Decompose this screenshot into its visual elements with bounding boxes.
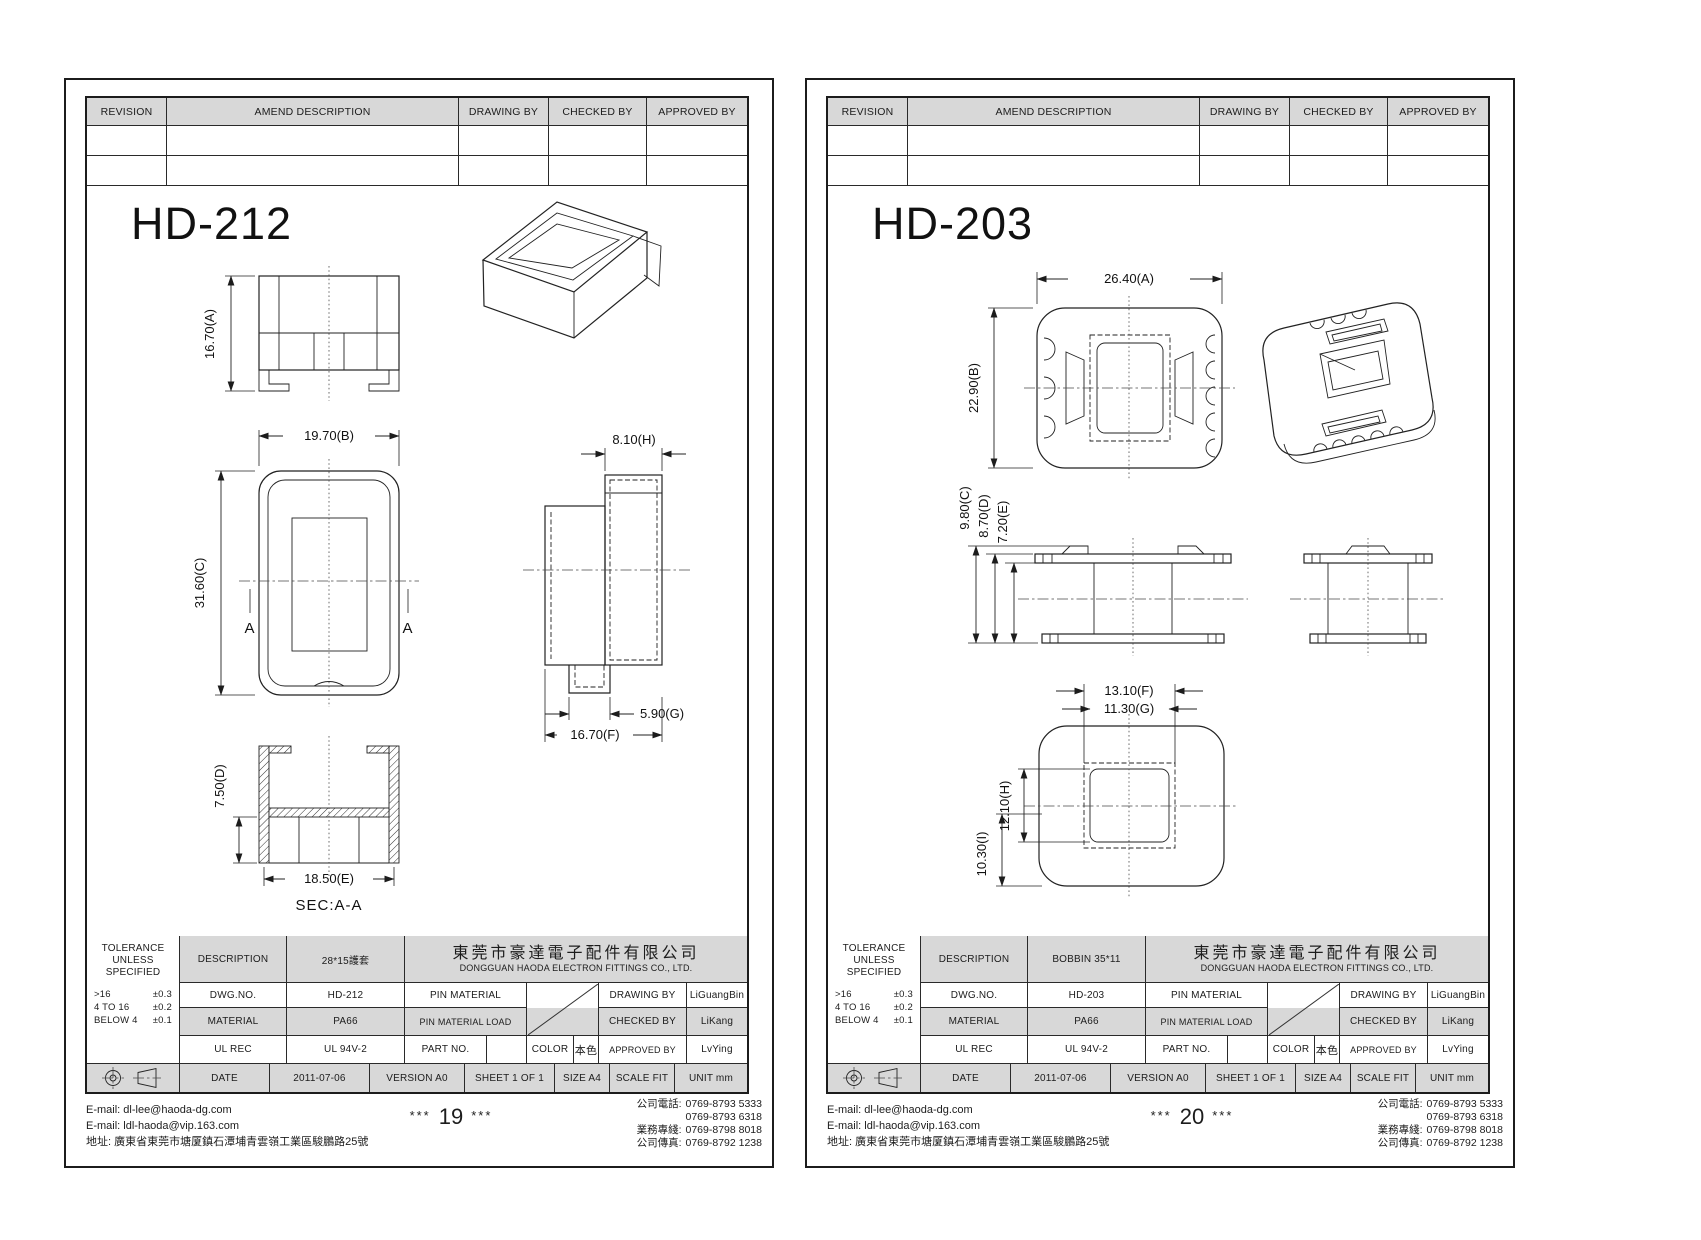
revision-empty-cell — [1290, 126, 1388, 156]
version-cell: VERSION A0 — [1111, 1064, 1206, 1092]
revision-empty-cell — [1200, 126, 1290, 156]
fax-number: 0769-8792 1238 — [1427, 1137, 1504, 1150]
tol-range-2: 4 TO 16 — [835, 1001, 870, 1014]
dim-label-d: 7.50(D) — [212, 764, 227, 807]
unit-cell: UNIT mm — [1416, 1064, 1488, 1092]
top-view: 16.70(A) — [202, 266, 399, 401]
page-number: ***20*** — [1107, 1104, 1277, 1130]
color-label-cell: COLOR — [527, 1036, 574, 1064]
dim-label-a: 16.70(A) — [202, 309, 217, 359]
bottom-view: 13.10(F) 11.30(G) 12.10(H) 10.30(I) — [974, 683, 1238, 898]
projection-symbols — [102, 1067, 164, 1089]
dim-label-g: 11.30(G) — [1104, 701, 1154, 716]
top-view: 26.40(A) 22.90(B) — [966, 271, 1235, 480]
revision-empty-cell — [828, 156, 908, 186]
revision-table: REVISION AMEND DESCRIPTION DRAWING BY CH… — [87, 98, 747, 186]
ulrec-label-cell: UL REC — [921, 1036, 1028, 1064]
projection-symbols-cell — [87, 1064, 180, 1092]
scale-cell: SCALE FIT — [1351, 1064, 1416, 1092]
revision-empty-cell — [87, 126, 167, 156]
phone-2: 0769-8793 6318 — [1427, 1111, 1504, 1124]
dim-label-b: 22.90(B) — [966, 363, 981, 413]
company-name-en: DONGGUAN HAODA ELECTRON FITTINGS CO., LT… — [460, 963, 693, 974]
company-name-en: DONGGUAN HAODA ELECTRON FITTINGS CO., LT… — [1201, 963, 1434, 974]
checkedby-label-cell: CHECKED BY — [1340, 1008, 1428, 1036]
phone-2: 0769-8793 6318 — [686, 1111, 763, 1124]
dim-label-c: 31.60(C) — [192, 558, 207, 609]
dim-label-f: 13.10(F) — [1104, 683, 1153, 698]
approvedby-header-cell: APPROVED BY — [1388, 98, 1488, 126]
company-name-cn: 東莞市豪達電子配件有限公司 — [1193, 945, 1440, 963]
technical-drawing-hd203: 26.40(A) 22.90(B) — [828, 186, 1488, 936]
section-view: 7.50(D) 18.50(E) SEC:A-A — [212, 736, 399, 914]
footer-phones: 公司電話:0769-8793 5333 0769-8793 6318 業務專綫:… — [620, 1098, 763, 1150]
dwgno-value-cell: HD-212 — [287, 983, 405, 1008]
revision-header-cell: REVISION — [828, 98, 908, 126]
page-number-stars-left: *** — [1151, 1108, 1172, 1123]
revision-empty-cell — [1200, 156, 1290, 186]
partno-label-cell: PART NO. — [405, 1036, 487, 1064]
sheet-frame: REVISION AMEND DESCRIPTION DRAWING BY CH… — [826, 96, 1490, 1094]
footer-email-2: E-mail: ldl-haoda@vip.163.com — [86, 1118, 368, 1134]
section-mark-a-right: A — [402, 620, 413, 637]
approvedby-label-cell: APPROVED BY — [1340, 1036, 1428, 1064]
footer-address: 地址: 廣東省東莞市塘厦鎮石潭埔青雲嶺工業區駿鵬路25號 — [827, 1134, 1109, 1150]
sheet-frame: REVISION AMEND DESCRIPTION DRAWING BY CH… — [85, 96, 749, 1094]
dim-label-b: 19.70(B) — [304, 428, 354, 443]
material-label-cell: MATERIAL — [921, 1008, 1028, 1036]
partno-label-cell: PART NO. — [1146, 1036, 1228, 1064]
side-elevation — [1290, 538, 1446, 656]
page-number-value: 19 — [439, 1104, 463, 1129]
title-block: TOLERANCE UNLESS SPECIFIED >16±0.3 4 TO … — [828, 936, 1488, 1092]
projection-symbols — [843, 1067, 905, 1089]
tolerance-rows: >16±0.3 4 TO 16±0.2 BELOW 4±0.1 — [828, 988, 920, 1027]
partno-value-cell — [1228, 1036, 1268, 1064]
dim-label-c: 9.80(C) — [957, 486, 972, 529]
tolerance-line3: SPECIFIED — [847, 967, 902, 979]
checkedby-header-cell: CHECKED BY — [1290, 98, 1388, 126]
company-name-cn: 東莞市豪達電子配件有限公司 — [452, 945, 699, 963]
company-cell: 東莞市豪達電子配件有限公司 DONGGUAN HAODA ELECTRON FI… — [405, 936, 747, 983]
section-mark-a-left: A — [244, 620, 255, 637]
drawingby-header-cell: DRAWING BY — [459, 98, 549, 126]
approvedby-name-cell: LvYing — [1428, 1036, 1488, 1064]
dim-label-f: 16.70(F) — [570, 727, 619, 742]
page-number-value: 20 — [1180, 1104, 1204, 1129]
sheet-cell: SHEET 1 OF 1 — [465, 1064, 555, 1092]
ulrec-value-cell: UL 94V-2 — [287, 1036, 405, 1064]
version-cell: VERSION A0 — [370, 1064, 465, 1092]
pin-material-diagonal-cell — [1268, 983, 1340, 1036]
amend-header-cell: AMEND DESCRIPTION — [908, 98, 1200, 126]
description-value-cell: 28*15護套 — [287, 936, 405, 983]
dim-label-e: 18.50(E) — [304, 871, 354, 886]
size-cell: SIZE A4 — [555, 1064, 610, 1092]
footer-contact: E-mail: dl-lee@haoda-dg.com E-mail: ldl-… — [827, 1102, 1109, 1150]
amend-header-cell: AMEND DESCRIPTION — [167, 98, 459, 126]
checkedby-label-cell: CHECKED BY — [599, 1008, 687, 1036]
scale-cell: SCALE FIT — [610, 1064, 675, 1092]
drawingby-label-cell: DRAWING BY — [1340, 983, 1428, 1008]
pin-material-diagonal-cell — [527, 983, 599, 1036]
revision-header-cell: REVISION — [87, 98, 167, 126]
revision-empty-cell — [549, 156, 647, 186]
phone-label: 公司電話: — [1361, 1098, 1423, 1111]
dim-label-h: 8.10(H) — [612, 432, 655, 447]
dim-label-h: 12.10(H) — [997, 781, 1012, 832]
sheet-cell: SHEET 1 OF 1 — [1206, 1064, 1296, 1092]
checkedby-name-cell: LiKang — [687, 1008, 747, 1036]
revision-empty-cell — [459, 156, 549, 186]
revision-empty-cell — [1388, 126, 1488, 156]
front-view: A A 31.60(C) — [192, 459, 419, 707]
footer-contact: E-mail: dl-lee@haoda-dg.com E-mail: ldl-… — [86, 1102, 368, 1150]
tol-val-2: ±0.2 — [894, 1001, 913, 1014]
side-view: 8.10(H) 5.90(G) 16.70(F) — [523, 432, 693, 742]
page-number-stars-right: *** — [1212, 1108, 1233, 1123]
biz-label: 業務專綫: — [1361, 1124, 1423, 1137]
material-value-cell: PA66 — [287, 1008, 405, 1036]
revision-empty-cell — [87, 156, 167, 186]
revision-empty-cell — [459, 126, 549, 156]
drawingby-header-cell: DRAWING BY — [1200, 98, 1290, 126]
revision-table: REVISION AMEND DESCRIPTION DRAWING BY CH… — [828, 98, 1488, 186]
checkedby-name-cell: LiKang — [1428, 1008, 1488, 1036]
description-value-cell: BOBBIN 35*11 — [1028, 936, 1146, 983]
drawingby-label-cell: DRAWING BY — [599, 983, 687, 1008]
tolerance-cell: TOLERANCE UNLESS SPECIFIED >16±0.3 4 TO … — [828, 936, 921, 1064]
dim-label-e: 7.20(E) — [995, 501, 1010, 544]
tol-range-2: 4 TO 16 — [94, 1001, 129, 1014]
revision-empty-cell — [828, 126, 908, 156]
phone-label: 公司電話: — [620, 1098, 682, 1111]
pin-material-load-cell: PIN MATERIAL LOAD — [405, 1008, 527, 1036]
footer-email-2: E-mail: ldl-haoda@vip.163.com — [827, 1118, 1109, 1134]
tol-val-3: ±0.1 — [894, 1014, 913, 1027]
description-label-cell: DESCRIPTION — [921, 936, 1028, 983]
tol-val-3: ±0.1 — [153, 1014, 172, 1027]
ulrec-value-cell: UL 94V-2 — [1028, 1036, 1146, 1064]
revision-empty-cell — [1290, 156, 1388, 186]
revision-empty-cell — [167, 126, 459, 156]
color-value-cell: 本色 — [574, 1036, 599, 1064]
page-number-stars-left: *** — [410, 1108, 431, 1123]
dwgno-label-cell: DWG.NO. — [921, 983, 1028, 1008]
date-value-cell: 2011-07-06 — [270, 1064, 370, 1092]
footer-email-1: E-mail: dl-lee@haoda-dg.com — [86, 1102, 368, 1118]
section-caption: SEC:A-A — [295, 897, 362, 914]
dim-label-a: 26.40(A) — [1104, 271, 1154, 286]
tol-val-1: ±0.3 — [153, 988, 172, 1001]
fax-number: 0769-8792 1238 — [686, 1137, 763, 1150]
title-block: TOLERANCE UNLESS SPECIFIED >16±0.3 4 TO … — [87, 936, 747, 1092]
approvedby-name-cell: LvYing — [687, 1036, 747, 1064]
tolerance-line2: UNLESS — [853, 955, 894, 967]
footer-phones: 公司電話:0769-8793 5333 0769-8793 6318 業務專綫:… — [1361, 1098, 1504, 1150]
approvedby-header-cell: APPROVED BY — [647, 98, 747, 126]
tolerance-line1: TOLERANCE — [102, 943, 165, 955]
color-label-cell: COLOR — [1268, 1036, 1315, 1064]
phone-1: 0769-8793 5333 — [1427, 1098, 1504, 1111]
revision-empty-cell — [908, 126, 1200, 156]
page-number-stars-right: *** — [471, 1108, 492, 1123]
tol-range-1: >16 — [94, 988, 111, 1001]
tol-range-1: >16 — [835, 988, 852, 1001]
drawingby-name-cell: LiGuangBin — [687, 983, 747, 1008]
color-value-cell: 本色 — [1315, 1036, 1340, 1064]
phone-1: 0769-8793 5333 — [686, 1098, 763, 1111]
tol-range-3: BELOW 4 — [835, 1014, 879, 1027]
tolerance-line2: UNLESS — [112, 955, 153, 967]
isometric-view — [1263, 303, 1435, 463]
checkedby-header-cell: CHECKED BY — [549, 98, 647, 126]
size-cell: SIZE A4 — [1296, 1064, 1351, 1092]
revision-empty-cell — [1388, 156, 1488, 186]
tolerance-line3: SPECIFIED — [106, 967, 161, 979]
tolerance-rows: >16±0.3 4 TO 16±0.2 BELOW 4±0.1 — [87, 988, 179, 1027]
front-elevation: 9.80(C) 8.70(D) 7.20(E) — [957, 486, 1248, 656]
tol-val-2: ±0.2 — [153, 1001, 172, 1014]
biz-label: 業務專綫: — [620, 1124, 682, 1137]
page-number: ***19*** — [366, 1104, 536, 1130]
dwgno-value-cell: HD-203 — [1028, 983, 1146, 1008]
ulrec-label-cell: UL REC — [180, 1036, 287, 1064]
dim-label-i: 10.30(I) — [974, 832, 989, 877]
tol-range-3: BELOW 4 — [94, 1014, 138, 1027]
footer-email-1: E-mail: dl-lee@haoda-dg.com — [827, 1102, 1109, 1118]
dwgno-label-cell: DWG.NO. — [180, 983, 287, 1008]
approvedby-label-cell: APPROVED BY — [599, 1036, 687, 1064]
partno-value-cell — [487, 1036, 527, 1064]
fax-label: 公司傳真: — [620, 1137, 682, 1150]
fax-label: 公司傳真: — [1361, 1137, 1423, 1150]
date-value-cell: 2011-07-06 — [1011, 1064, 1111, 1092]
date-label-cell: DATE — [921, 1064, 1011, 1092]
tol-val-1: ±0.3 — [894, 988, 913, 1001]
date-label-cell: DATE — [180, 1064, 270, 1092]
pin-material-load-cell: PIN MATERIAL LOAD — [1146, 1008, 1268, 1036]
revision-empty-cell — [167, 156, 459, 186]
unit-cell: UNIT mm — [675, 1064, 747, 1092]
revision-empty-cell — [549, 126, 647, 156]
isometric-view — [483, 202, 661, 338]
dim-label-d: 8.70(D) — [976, 494, 991, 537]
footer-address: 地址: 廣東省東莞市塘厦鎮石潭埔青雲嶺工業區駿鵬路25號 — [86, 1134, 368, 1150]
tolerance-line1: TOLERANCE — [843, 943, 906, 955]
company-cell: 東莞市豪達電子配件有限公司 DONGGUAN HAODA ELECTRON FI… — [1146, 936, 1488, 983]
pin-material-cell: PIN MATERIAL — [405, 983, 527, 1008]
technical-drawing-hd212: 16.70(A) 19.70(B) A A — [87, 186, 747, 936]
material-value-cell: PA66 — [1028, 1008, 1146, 1036]
drawingby-name-cell: LiGuangBin — [1428, 983, 1488, 1008]
sheet-hd203: REVISION AMEND DESCRIPTION DRAWING BY CH… — [805, 78, 1515, 1168]
biz-phone: 0769-8798 8018 — [1427, 1124, 1504, 1137]
tolerance-cell: TOLERANCE UNLESS SPECIFIED >16±0.3 4 TO … — [87, 936, 180, 1064]
projection-symbols-cell — [828, 1064, 921, 1092]
revision-empty-cell — [908, 156, 1200, 186]
description-label-cell: DESCRIPTION — [180, 936, 287, 983]
revision-empty-cell — [647, 126, 747, 156]
pin-material-cell: PIN MATERIAL — [1146, 983, 1268, 1008]
biz-phone: 0769-8798 8018 — [686, 1124, 763, 1137]
sheet-hd212: REVISION AMEND DESCRIPTION DRAWING BY CH… — [64, 78, 774, 1168]
material-label-cell: MATERIAL — [180, 1008, 287, 1036]
revision-empty-cell — [647, 156, 747, 186]
